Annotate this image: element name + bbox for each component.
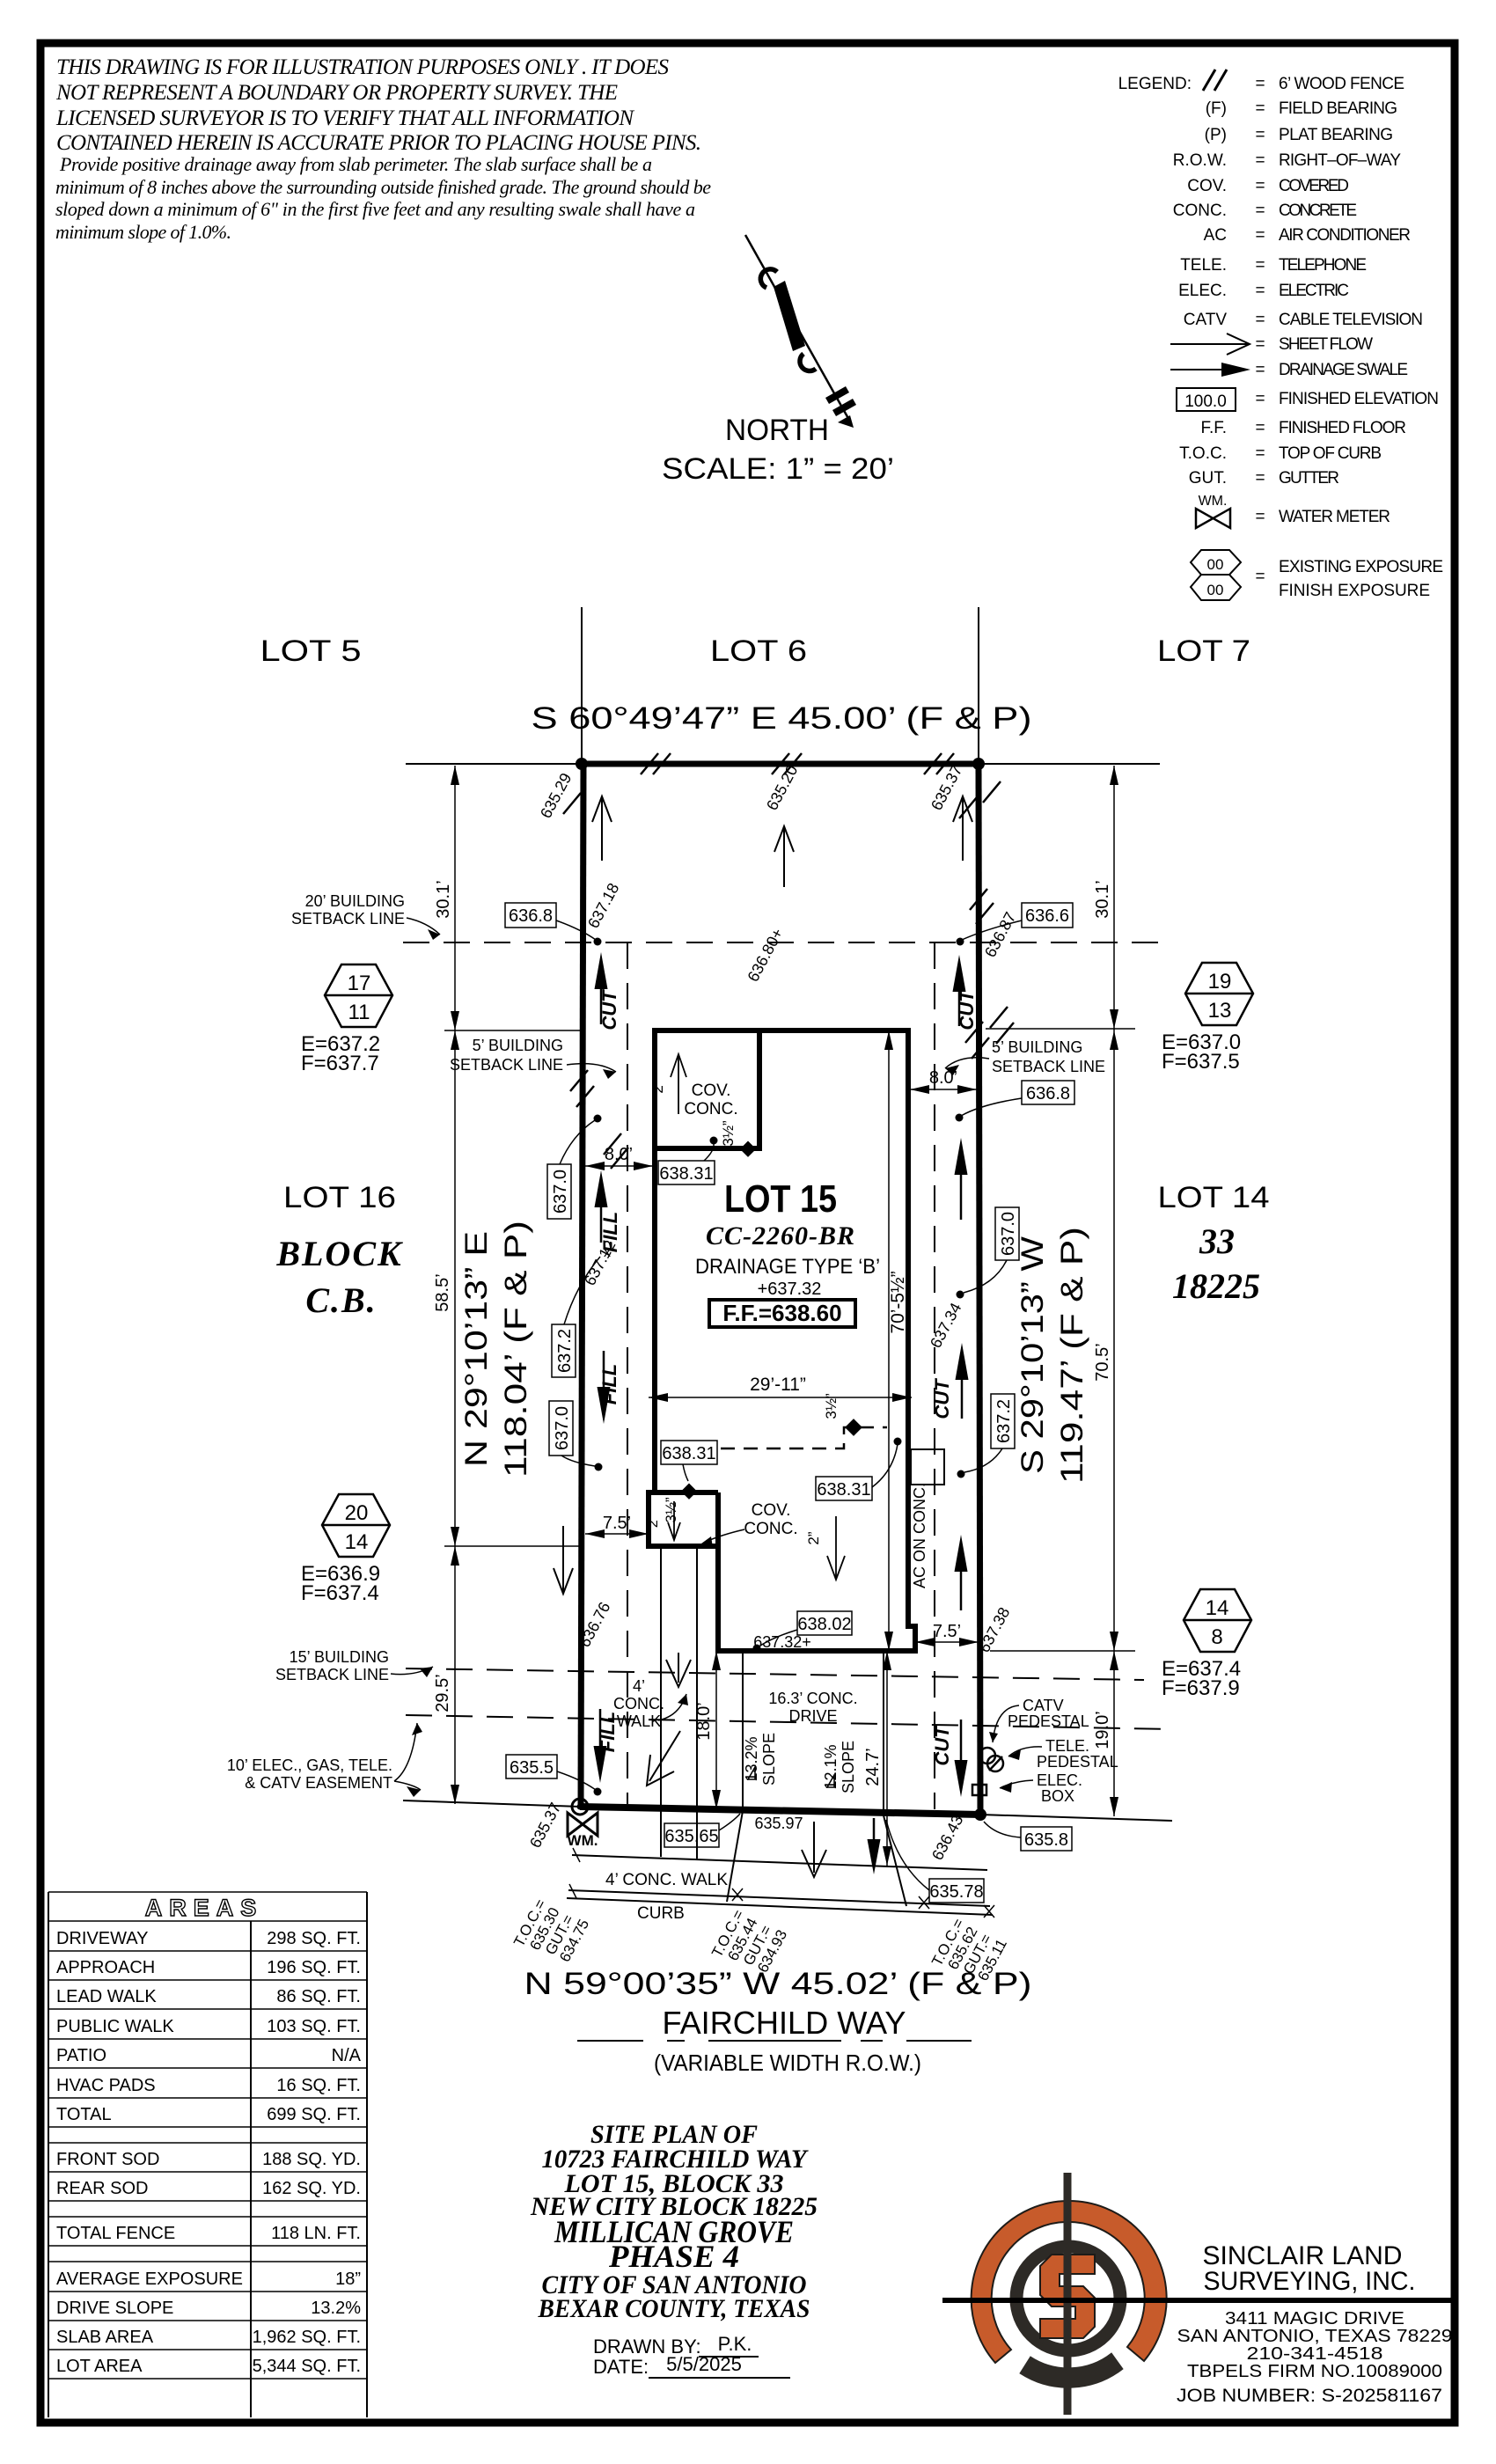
svg-text:WATER METER: WATER METER <box>1279 508 1390 526</box>
svg-text:SLOPE: SLOPE <box>760 1733 778 1786</box>
svg-text:C.B.: C.B. <box>305 1280 377 1320</box>
svg-text:58.5’: 58.5’ <box>433 1273 452 1311</box>
svg-text:THIS DRAWING IS FOR ILLUSTRATI: THIS DRAWING IS FOR ILLUSTRATION PURPOSE… <box>56 55 670 79</box>
svg-text:13.2%: 13.2% <box>311 2299 361 2318</box>
svg-text:=: = <box>1255 444 1265 463</box>
svg-text:LOT 15: LOT 15 <box>724 1177 837 1221</box>
svg-text:CUT: CUT <box>956 989 978 1030</box>
svg-text:AC ON CONC.: AC ON CONC. <box>911 1483 928 1588</box>
svg-text:11: 11 <box>348 1001 370 1024</box>
svg-text:SLAB AREA: SLAB AREA <box>56 2328 154 2347</box>
svg-text:REAR SOD: REAR SOD <box>56 2179 148 2198</box>
svg-text:TBPELS FIRM NO.10089000: TBPELS FIRM NO.10089000 <box>1187 2362 1442 2381</box>
svg-text:CONC.: CONC. <box>744 1520 797 1538</box>
svg-text:=: = <box>1255 469 1265 488</box>
svg-text:3½”: 3½” <box>663 1497 679 1523</box>
svg-text:CC-2260-BR: CC-2260-BR <box>706 1221 855 1250</box>
svg-text:minimum of 8 inches above the: minimum of 8 inches above the surroundin… <box>55 176 711 198</box>
svg-text:=: = <box>1255 282 1265 300</box>
svg-text:APPROACH: APPROACH <box>56 1958 155 1977</box>
svg-text:sloped down a minimum of 6" in: sloped down a minimum of 6" in the first… <box>55 198 695 220</box>
svg-text:30.1’: 30.1’ <box>434 880 453 918</box>
svg-text:14: 14 <box>345 1530 369 1554</box>
svg-text:CATV: CATV <box>1184 311 1228 329</box>
svg-text:DRIVE SLOPE: DRIVE SLOPE <box>56 2299 173 2318</box>
svg-text:4’ CONC. WALK: 4’ CONC. WALK <box>605 1871 728 1889</box>
svg-text:29’-11”: 29’-11” <box>750 1375 806 1395</box>
svg-text:18”: 18” <box>335 2270 361 2289</box>
svg-text:RIGHT–OF–WAY: RIGHT–OF–WAY <box>1279 151 1401 170</box>
svg-text:LOT 14: LOT 14 <box>1158 1181 1270 1214</box>
svg-text:=: = <box>1255 99 1265 118</box>
svg-text:SLOPE: SLOPE <box>840 1741 857 1793</box>
svg-text:N 59°00’35” W 45.02’ (F & P): N 59°00’35” W 45.02’ (F & P) <box>524 1967 1032 2001</box>
svg-text:=: = <box>1255 226 1265 245</box>
svg-text:CABLE TELEVISION: CABLE TELEVISION <box>1279 311 1423 329</box>
svg-text:CUT: CUT <box>931 1378 953 1419</box>
svg-text:00: 00 <box>1207 556 1224 573</box>
svg-text:=: = <box>1255 568 1265 586</box>
svg-text:DRAINAGE TYPE ‘B’: DRAINAGE TYPE ‘B’ <box>695 1255 880 1279</box>
svg-text:30.1’: 30.1’ <box>1093 880 1112 918</box>
svg-text:637.0: 637.0 <box>551 1170 570 1214</box>
svg-text:JOB NUMBER: S-202581167: JOB NUMBER: S-202581167 <box>1177 2386 1442 2406</box>
svg-text:F=637.7: F=637.7 <box>301 1052 379 1075</box>
svg-text:16 SQ. FT.: 16 SQ. FT. <box>276 2076 361 2095</box>
svg-text:R.O.W.: R.O.W. <box>1173 151 1227 170</box>
svg-text:18225: 18225 <box>1172 1266 1260 1306</box>
svg-text:(F): (F) <box>1206 99 1227 118</box>
svg-text:2”: 2” <box>649 1080 666 1093</box>
svg-text:DRIVEWAY: DRIVEWAY <box>56 1929 148 1948</box>
svg-text:PHASE 4: PHASE 4 <box>608 2239 739 2274</box>
svg-text:CONTAINED HEREIN IS ACCURATE P: CONTAINED HEREIN IS ACCURATE PRIOR TO PL… <box>56 131 701 155</box>
svg-text:COVERED: COVERED <box>1279 177 1349 195</box>
svg-text:WALK: WALK <box>617 1712 661 1730</box>
svg-text:COV.: COV. <box>1187 177 1227 195</box>
svg-text:119.47’ (F & P): 119.47’ (F & P) <box>1055 1227 1089 1484</box>
svg-text:TOP OF CURB: TOP OF CURB <box>1279 444 1382 463</box>
svg-text:2”: 2” <box>646 1515 661 1528</box>
svg-text:24.7’: 24.7’ <box>863 1748 883 1786</box>
svg-text:F=637.5: F=637.5 <box>1162 1050 1240 1074</box>
svg-text:CONCRETE: CONCRETE <box>1279 202 1357 220</box>
svg-text:SETBACK LINE: SETBACK LINE <box>450 1056 563 1074</box>
svg-text:636.6: 636.6 <box>1025 906 1069 926</box>
svg-text:FILL: FILL <box>597 1712 619 1752</box>
svg-text:NOT REPRESENT A BOUNDARY OR PR: NOT REPRESENT A BOUNDARY OR PROPERTY SUR… <box>55 81 618 105</box>
svg-text:SURVEYING, INC.: SURVEYING, INC. <box>1204 2267 1416 2296</box>
svg-text:AVERAGE EXPOSURE: AVERAGE EXPOSURE <box>56 2270 243 2289</box>
svg-text:NORTH: NORTH <box>725 414 829 447</box>
svg-text:118 LN. FT.: 118 LN. FT. <box>271 2224 361 2243</box>
svg-text:FAIRCHILD WAY: FAIRCHILD WAY <box>663 2005 906 2041</box>
svg-text:7.5’: 7.5’ <box>933 1622 961 1641</box>
svg-text:SETBACK LINE: SETBACK LINE <box>992 1058 1105 1075</box>
svg-text:8.0’: 8.0’ <box>605 1145 633 1164</box>
svg-text:LICENSED SURVEYOR IS TO VERIFY: LICENSED SURVEYOR IS TO VERIFY THAT ALL … <box>55 106 634 130</box>
svg-text:=: = <box>1255 177 1265 195</box>
svg-text:196 SQ. FT.: 196 SQ. FT. <box>267 1958 361 1977</box>
svg-text:86 SQ. FT.: 86 SQ. FT. <box>276 1987 361 2006</box>
svg-text:162 SQ. YD.: 162 SQ. YD. <box>262 2179 361 2198</box>
svg-text:=: = <box>1255 75 1265 93</box>
svg-text:CURB: CURB <box>637 1904 685 1923</box>
svg-text:=: = <box>1255 311 1265 329</box>
svg-text:TOTAL: TOTAL <box>56 2105 112 2124</box>
svg-text:1,962 SQ. FT.: 1,962 SQ. FT. <box>253 2328 361 2347</box>
svg-text:13.2%: 13.2% <box>743 1736 760 1781</box>
svg-text:635.65: 635.65 <box>664 1827 718 1846</box>
svg-text:SHEET FLOW: SHEET FLOW <box>1279 335 1373 354</box>
svg-text:S 60°49’47” E 45.00’ (F & P): S 60°49’47” E 45.00’ (F & P) <box>532 701 1032 736</box>
svg-text:T.O.C.: T.O.C. <box>1179 444 1227 463</box>
svg-text:6’ WOOD FENCE: 6’ WOOD FENCE <box>1279 75 1404 93</box>
svg-text:=: = <box>1255 390 1265 408</box>
svg-text:FINISHED ELEVATION: FINISHED ELEVATION <box>1279 390 1439 408</box>
svg-text:8: 8 <box>1211 1625 1222 1649</box>
svg-text:AREAS: AREAS <box>145 1895 264 1921</box>
svg-text:TELEPHONE: TELEPHONE <box>1279 256 1367 275</box>
svg-text:=: = <box>1255 335 1265 354</box>
svg-text:AIR CONDITIONER: AIR CONDITIONER <box>1279 226 1411 245</box>
svg-text:100.0: 100.0 <box>1184 392 1227 411</box>
svg-text:CATV: CATV <box>1023 1697 1064 1714</box>
svg-text:TELE.: TELE. <box>1180 256 1227 275</box>
svg-text:CONC.: CONC. <box>1173 202 1227 220</box>
svg-text:AC: AC <box>1204 226 1227 245</box>
svg-text:LOT 16: LOT 16 <box>283 1181 396 1214</box>
svg-text:5,344 SQ. FT.: 5,344 SQ. FT. <box>253 2357 361 2376</box>
svg-text:20’ BUILDING: 20’ BUILDING <box>305 892 405 910</box>
svg-text:PUBLIC WALK: PUBLIC WALK <box>56 2017 174 2036</box>
svg-text:F=637.4: F=637.4 <box>301 1581 379 1605</box>
svg-text:LOT 7: LOT 7 <box>1157 634 1250 668</box>
svg-text:SETBACK LINE: SETBACK LINE <box>291 910 405 928</box>
svg-text:ELEC.: ELEC. <box>1178 282 1227 300</box>
svg-text:LEGEND:: LEGEND: <box>1118 75 1192 93</box>
svg-text:LOT AREA: LOT AREA <box>56 2357 143 2376</box>
svg-text:16.3’ CONC.: 16.3’ CONC. <box>768 1690 857 1707</box>
svg-text:HVAC PADS: HVAC PADS <box>56 2076 156 2095</box>
svg-text:637.32+: 637.32+ <box>753 1633 811 1651</box>
svg-text:PATIO: PATIO <box>56 2046 106 2065</box>
svg-text:118.04’ (F & P): 118.04’ (F & P) <box>499 1221 533 1478</box>
svg-text:FIELD BEARING: FIELD BEARING <box>1279 99 1397 118</box>
svg-text:P.K.: P.K. <box>718 2333 752 2355</box>
svg-text:TOTAL FENCE: TOTAL FENCE <box>56 2224 175 2243</box>
svg-text:12.1%: 12.1% <box>822 1744 840 1789</box>
svg-text:DATE:: DATE: <box>593 2356 649 2378</box>
svg-text:10’ ELEC., GAS, TELE.: 10’ ELEC., GAS, TELE. <box>227 1756 392 1774</box>
svg-text:14: 14 <box>1206 1596 1229 1620</box>
svg-text:Provide positive drainage away: Provide positive drainage away from slab… <box>59 153 652 175</box>
svg-text:F.F.: F.F. <box>1200 419 1227 437</box>
svg-text:PEDESTAL: PEDESTAL <box>1008 1712 1089 1730</box>
svg-text:638.31: 638.31 <box>817 1480 870 1500</box>
svg-text:298 SQ. FT.: 298 SQ. FT. <box>267 1929 361 1948</box>
svg-text:188 SQ. YD.: 188 SQ. YD. <box>262 2150 361 2169</box>
svg-text:636.8: 636.8 <box>509 906 553 926</box>
svg-text:637.2: 637.2 <box>994 1399 1014 1443</box>
svg-text:LEAD WALK: LEAD WALK <box>56 1987 157 2006</box>
svg-text:SETBACK LINE: SETBACK LINE <box>275 1666 389 1683</box>
svg-text:WM.: WM. <box>568 1832 598 1849</box>
svg-text:5/5/2025: 5/5/2025 <box>666 2353 742 2375</box>
svg-text:19.0’: 19.0’ <box>1093 1711 1112 1749</box>
svg-text:SCALE: 1” = 20’: SCALE: 1” = 20’ <box>662 452 894 486</box>
svg-text:635.8: 635.8 <box>1024 1830 1068 1850</box>
svg-text:CONC.: CONC. <box>684 1100 737 1118</box>
svg-text:7.5’: 7.5’ <box>603 1514 631 1533</box>
svg-text:636.8: 636.8 <box>1026 1084 1070 1104</box>
svg-text:4’: 4’ <box>633 1677 645 1695</box>
svg-text:19: 19 <box>1208 970 1232 994</box>
svg-text:103 SQ. FT.: 103 SQ. FT. <box>267 2017 361 2036</box>
svg-text:3411 MAGIC DRIVE: 3411 MAGIC DRIVE <box>1225 2309 1404 2328</box>
svg-text:=: = <box>1255 361 1265 379</box>
svg-text:& CATV EASEMENT: & CATV EASEMENT <box>245 1774 392 1792</box>
svg-text:ELECTRIC: ELECTRIC <box>1279 282 1349 300</box>
svg-text:638.31: 638.31 <box>659 1164 713 1184</box>
svg-text:=: = <box>1255 151 1265 170</box>
svg-text:ELEC.: ELEC. <box>1037 1771 1082 1789</box>
svg-text:20: 20 <box>345 1501 369 1525</box>
svg-text:637.0: 637.0 <box>553 1406 572 1450</box>
svg-text:COV.: COV. <box>752 1501 791 1520</box>
svg-text:(P): (P) <box>1205 126 1227 144</box>
svg-text:EXISTING EXPOSURE: EXISTING EXPOSURE <box>1279 558 1443 576</box>
svg-text:5’ BUILDING: 5’ BUILDING <box>992 1038 1082 1056</box>
svg-text:SAN ANTONIO, TEXAS 78229: SAN ANTONIO, TEXAS 78229 <box>1177 2327 1453 2346</box>
svg-text:COV.: COV. <box>692 1082 731 1100</box>
svg-text:PLAT BEARING: PLAT BEARING <box>1279 126 1393 144</box>
svg-text:210-341-4518: 210-341-4518 <box>1247 2344 1383 2364</box>
svg-text:=: = <box>1255 202 1265 220</box>
svg-text:DRIVE: DRIVE <box>788 1707 837 1725</box>
svg-text:minimum slope of 1.0%.: minimum slope of 1.0%. <box>55 221 231 243</box>
svg-text:DRAINAGE SWALE: DRAINAGE SWALE <box>1279 361 1408 379</box>
svg-text:15’ BUILDING: 15’ BUILDING <box>290 1648 389 1666</box>
svg-text:637.0: 637.0 <box>999 1212 1018 1256</box>
svg-text:29.5’: 29.5’ <box>433 1674 452 1712</box>
svg-text:FINISH EXPOSURE: FINISH EXPOSURE <box>1279 582 1430 600</box>
svg-text:BEXAR COUNTY, TEXAS: BEXAR COUNTY, TEXAS <box>538 2294 810 2323</box>
svg-text:70’-5½”: 70’-5½” <box>888 1271 908 1333</box>
svg-text:2”: 2” <box>805 1531 822 1544</box>
svg-text:GUT.: GUT. <box>1189 469 1227 488</box>
svg-text:638.31: 638.31 <box>662 1444 715 1463</box>
svg-text:FILL: FILL <box>598 1364 620 1404</box>
svg-text:=: = <box>1255 419 1265 437</box>
svg-text:GUTTER: GUTTER <box>1279 469 1339 488</box>
svg-text:637.2: 637.2 <box>555 1329 575 1373</box>
svg-text:70.5’: 70.5’ <box>1093 1343 1112 1381</box>
svg-text:WM.: WM. <box>1199 494 1228 509</box>
svg-text:N 29°10’13” E: N 29°10’13” E <box>459 1231 494 1467</box>
svg-text:FRONT SOD: FRONT SOD <box>56 2150 159 2169</box>
svg-text:33: 33 <box>1199 1221 1235 1261</box>
svg-text:TELE.: TELE. <box>1045 1737 1089 1755</box>
svg-text:CUT: CUT <box>931 1725 953 1766</box>
svg-text:13: 13 <box>1208 999 1232 1023</box>
svg-text:N/A: N/A <box>332 2046 362 2065</box>
svg-text:FINISHED FLOOR: FINISHED FLOOR <box>1279 419 1406 437</box>
svg-text:=: = <box>1255 256 1265 275</box>
svg-text:LOT 6: LOT 6 <box>710 634 807 668</box>
svg-text:PEDESTAL: PEDESTAL <box>1037 1753 1118 1771</box>
svg-text:F.F.=638.60: F.F.=638.60 <box>722 1300 841 1326</box>
svg-text:=: = <box>1255 508 1265 526</box>
svg-text:5’ BUILDING: 5’ BUILDING <box>473 1037 563 1054</box>
svg-text:F=637.9: F=637.9 <box>1162 1676 1240 1700</box>
svg-text:635.97: 635.97 <box>754 1815 803 1832</box>
svg-text:(VARIABLE WIDTH R.O.W.): (VARIABLE WIDTH R.O.W.) <box>654 2050 921 2076</box>
svg-text:=: = <box>1255 126 1265 144</box>
svg-text:BLOCK: BLOCK <box>275 1234 403 1273</box>
svg-text:CONC.: CONC. <box>613 1695 664 1712</box>
svg-text:699 SQ. FT.: 699 SQ. FT. <box>267 2105 361 2124</box>
svg-text:17: 17 <box>348 972 371 995</box>
svg-text:BOX: BOX <box>1041 1787 1074 1805</box>
svg-text:CUT: CUT <box>598 989 620 1030</box>
svg-text:S 29°10’13” W: S 29°10’13” W <box>1016 1236 1050 1474</box>
svg-text:635.5: 635.5 <box>510 1758 554 1778</box>
svg-text:+637.32: +637.32 <box>758 1280 822 1299</box>
svg-text:00: 00 <box>1207 582 1224 598</box>
svg-text:LOT 5: LOT 5 <box>260 634 362 668</box>
svg-text:638.02: 638.02 <box>797 1615 851 1634</box>
svg-text:635.78: 635.78 <box>929 1882 983 1902</box>
svg-text:3½”: 3½” <box>720 1120 737 1147</box>
